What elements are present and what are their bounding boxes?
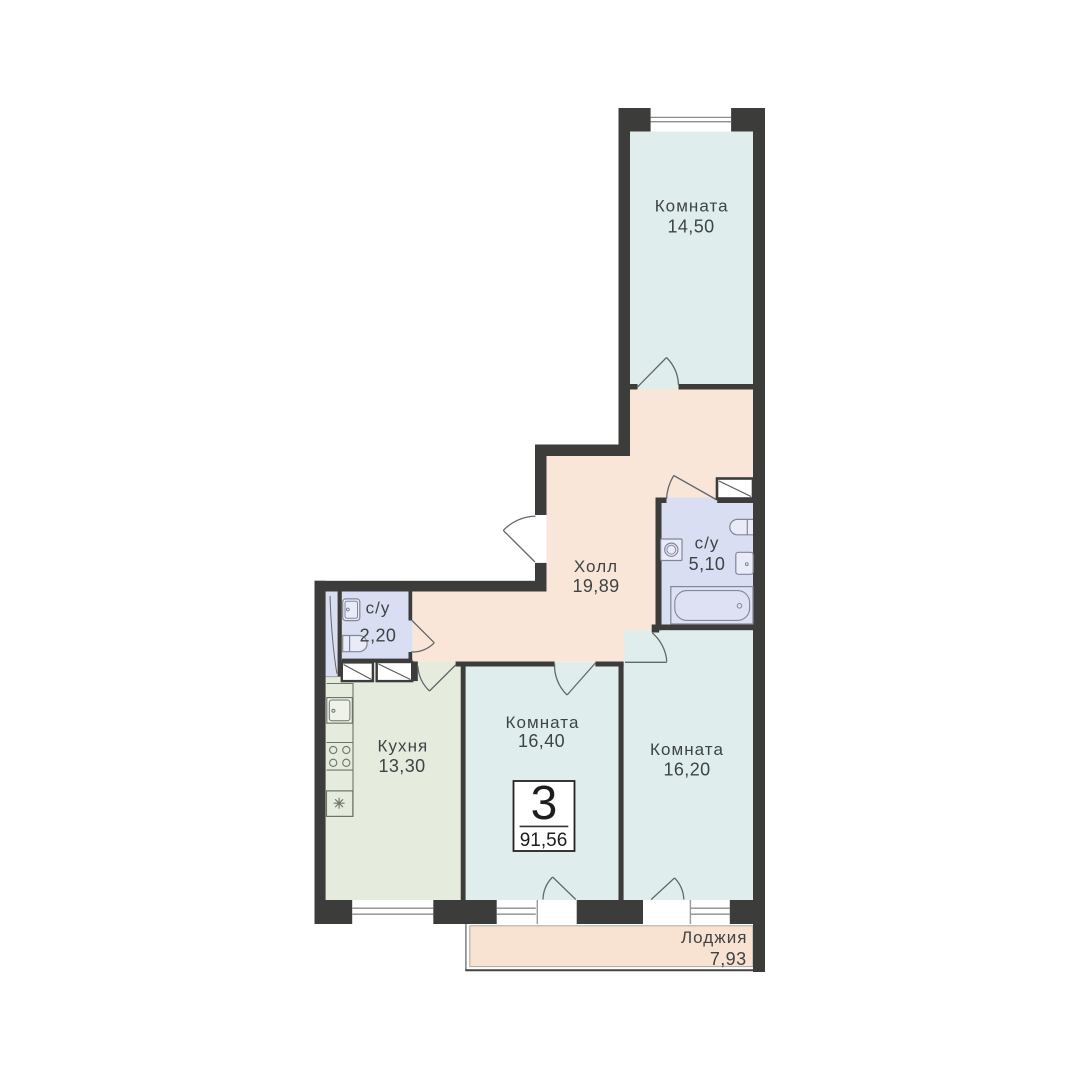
svg-text:Комната: Комната: [506, 713, 580, 732]
svg-text:Лоджия: Лоджия: [681, 928, 748, 947]
svg-text:Комната: Комната: [650, 740, 724, 759]
svg-text:с/у: с/у: [695, 534, 720, 553]
svg-text:Комната: Комната: [655, 197, 729, 216]
svg-text:14,50: 14,50: [667, 217, 714, 237]
svg-text:Холл: Холл: [574, 557, 618, 576]
svg-text:2,20: 2,20: [360, 626, 397, 646]
svg-text:3: 3: [531, 777, 558, 830]
svg-text:7,93: 7,93: [710, 949, 747, 969]
svg-text:91,56: 91,56: [520, 830, 568, 851]
svg-text:13,30: 13,30: [378, 756, 425, 776]
svg-text:Кухня: Кухня: [378, 736, 429, 755]
svg-text:5,10: 5,10: [689, 554, 726, 574]
svg-text:16,40: 16,40: [518, 731, 565, 751]
svg-text:19,89: 19,89: [572, 576, 619, 596]
svg-text:с/у: с/у: [366, 599, 391, 618]
svg-text:16,20: 16,20: [663, 760, 710, 780]
